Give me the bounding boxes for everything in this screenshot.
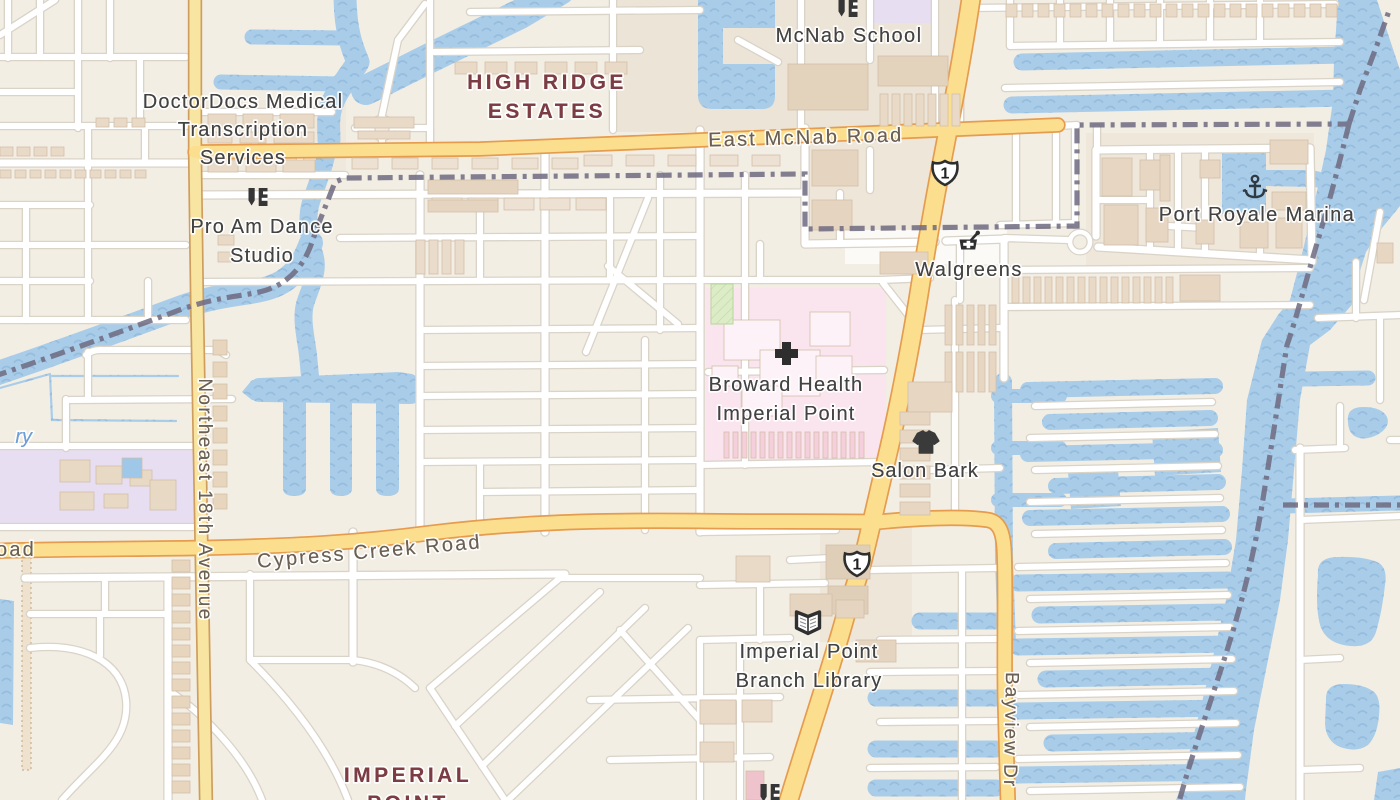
svg-text:Walgreens: Walgreens bbox=[915, 259, 1022, 281]
svg-text:Imperial Point: Imperial Point bbox=[716, 403, 855, 425]
svg-text:Imperial Point: Imperial Point bbox=[739, 641, 878, 663]
svg-text:1: 1 bbox=[941, 166, 950, 183]
svg-text:Port Royale Marina: Port Royale Marina bbox=[1159, 204, 1355, 226]
svg-text:Studio: Studio bbox=[230, 245, 294, 267]
svg-text:Northeast 18th Avenue: Northeast 18th Avenue bbox=[194, 378, 215, 621]
svg-text:Pro Am Dance: Pro Am Dance bbox=[190, 216, 333, 238]
svg-text:Bayview Dr: Bayview Dr bbox=[999, 672, 1022, 788]
svg-text:Broward Health: Broward Health bbox=[709, 374, 864, 396]
svg-text:DoctorDocs Medical: DoctorDocs Medical bbox=[143, 91, 344, 113]
svg-text:Salon Bark: Salon Bark bbox=[871, 460, 979, 482]
svg-text:1: 1 bbox=[853, 557, 862, 574]
svg-text:oad: oad bbox=[0, 539, 36, 561]
svg-text:HIGH RIDGE: HIGH RIDGE bbox=[467, 71, 627, 94]
svg-text:ry: ry bbox=[15, 426, 33, 448]
svg-text:POINT: POINT bbox=[367, 792, 449, 800]
svg-text:McNab School: McNab School bbox=[776, 25, 923, 47]
svg-text:Services: Services bbox=[200, 147, 286, 169]
svg-text:Transcription: Transcription bbox=[178, 119, 308, 141]
svg-text:IMPERIAL: IMPERIAL bbox=[344, 764, 472, 787]
svg-text:Branch Library: Branch Library bbox=[736, 670, 883, 692]
svg-text:ESTATES: ESTATES bbox=[488, 100, 606, 123]
